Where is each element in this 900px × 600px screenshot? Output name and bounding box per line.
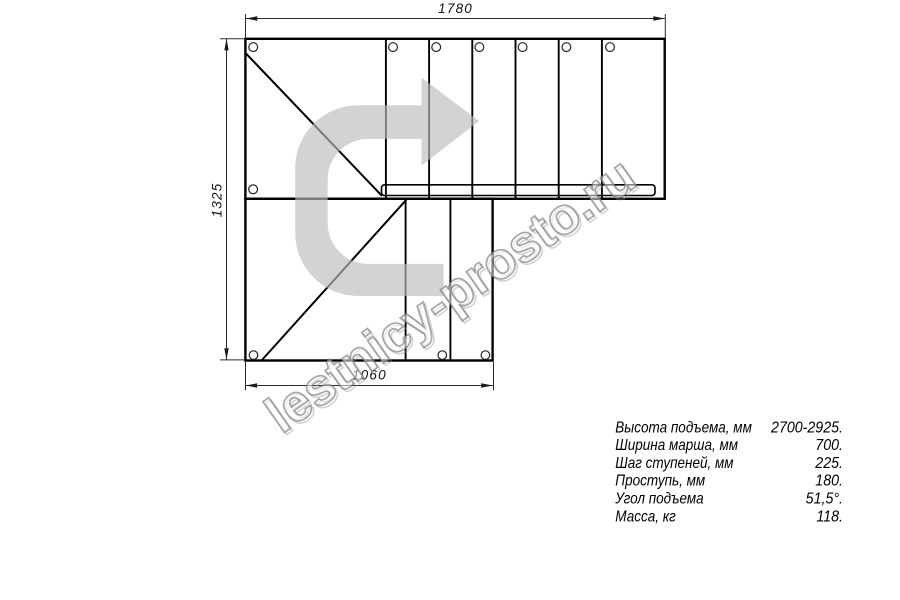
svg-text:225.: 225. [814, 454, 843, 472]
svg-text:1325: 1325 [210, 183, 225, 218]
svg-text:Высота подъема, мм: Высота подъема, мм [615, 419, 752, 436]
svg-text:Ширина марша, мм: Ширина марша, мм [615, 437, 738, 454]
svg-text:Шаг ступеней, мм: Шаг ступеней, мм [615, 455, 733, 472]
svg-text:118.: 118. [816, 508, 843, 526]
svg-text:Масса, кг: Масса, кг [615, 508, 675, 525]
svg-text:180.: 180. [815, 472, 843, 490]
svg-text:Угол подъема: Угол подъема [614, 491, 703, 508]
svg-text:Проступь, мм: Проступь, мм [615, 473, 705, 490]
svg-text:1780: 1780 [438, 1, 473, 16]
svg-text:51,5°.: 51,5°. [806, 490, 843, 508]
svg-text:700.: 700. [815, 436, 843, 454]
svg-text:2700-2925.: 2700-2925. [770, 419, 843, 437]
